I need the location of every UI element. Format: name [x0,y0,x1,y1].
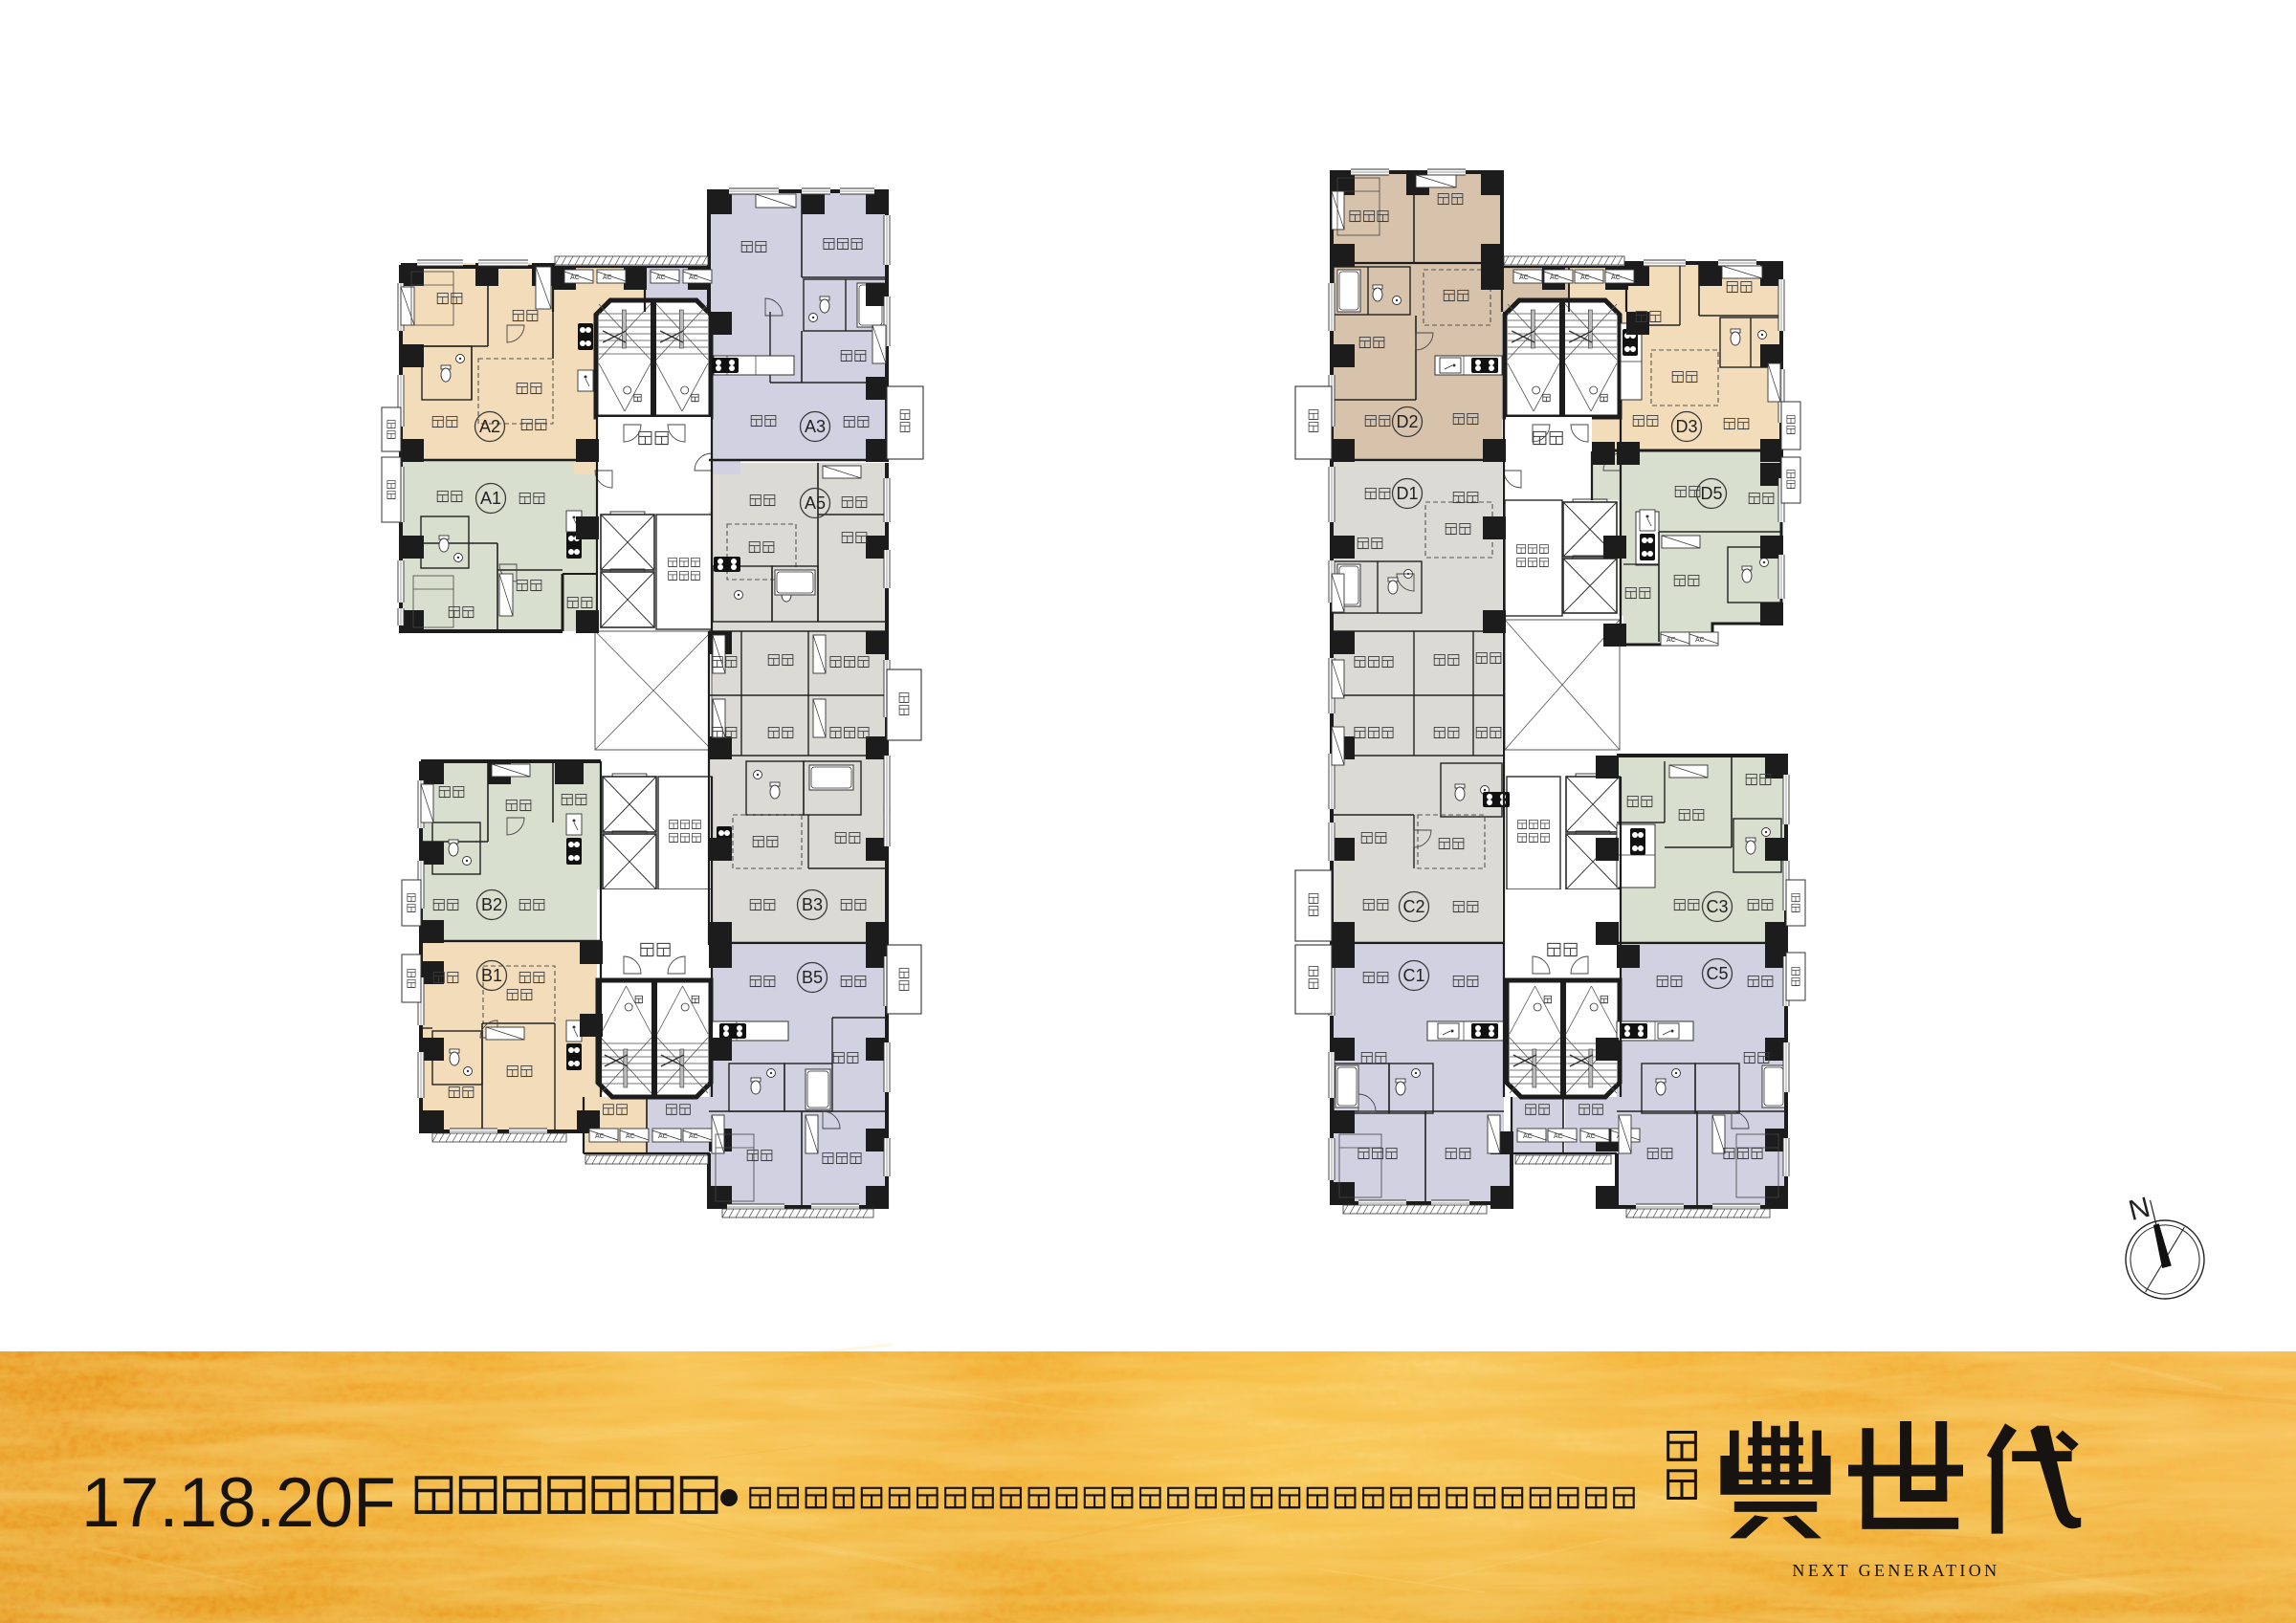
svg-text:AC: AC [626,1133,635,1140]
svg-text:B1: B1 [481,966,502,985]
svg-text:C1: C1 [1402,966,1424,985]
svg-text:A5: A5 [805,493,826,513]
svg-text:AC: AC [656,274,666,281]
svg-text:AC: AC [1554,1133,1563,1140]
svg-text:AC: AC [595,1133,605,1140]
svg-text:17.18.20F: 17.18.20F [81,1464,396,1542]
svg-text:B2: B2 [481,895,502,914]
svg-text:C2: C2 [1402,897,1424,916]
svg-text:A2: A2 [479,417,500,436]
svg-text:A1: A1 [480,489,501,508]
svg-text:AC: AC [603,274,612,281]
svg-text:D2: D2 [1396,412,1418,431]
svg-text:B3: B3 [802,895,823,914]
svg-text:A3: A3 [805,417,826,436]
svg-text:AC: AC [1580,274,1590,281]
svg-text:NEXT GENERATION: NEXT GENERATION [1792,1561,1999,1580]
svg-text:AC: AC [1586,1133,1596,1140]
svg-text:AC: AC [1519,274,1529,281]
svg-text:AC: AC [1611,274,1621,281]
svg-text:D1: D1 [1396,484,1418,503]
svg-text:AC: AC [658,1133,668,1140]
svg-text:AC: AC [1550,274,1559,281]
svg-text:AC: AC [570,274,580,281]
svg-text:AC: AC [689,274,698,281]
svg-text:B5: B5 [802,968,823,987]
svg-text:C5: C5 [1706,964,1728,983]
svg-text:C3: C3 [1706,897,1728,916]
svg-text:AC: AC [1523,1133,1533,1140]
svg-text:AC: AC [689,1133,698,1140]
svg-text:AC: AC [1695,637,1705,644]
svg-text:AC: AC [1667,637,1676,644]
svg-text:D5: D5 [1700,484,1722,503]
svg-text:D3: D3 [1675,417,1697,436]
